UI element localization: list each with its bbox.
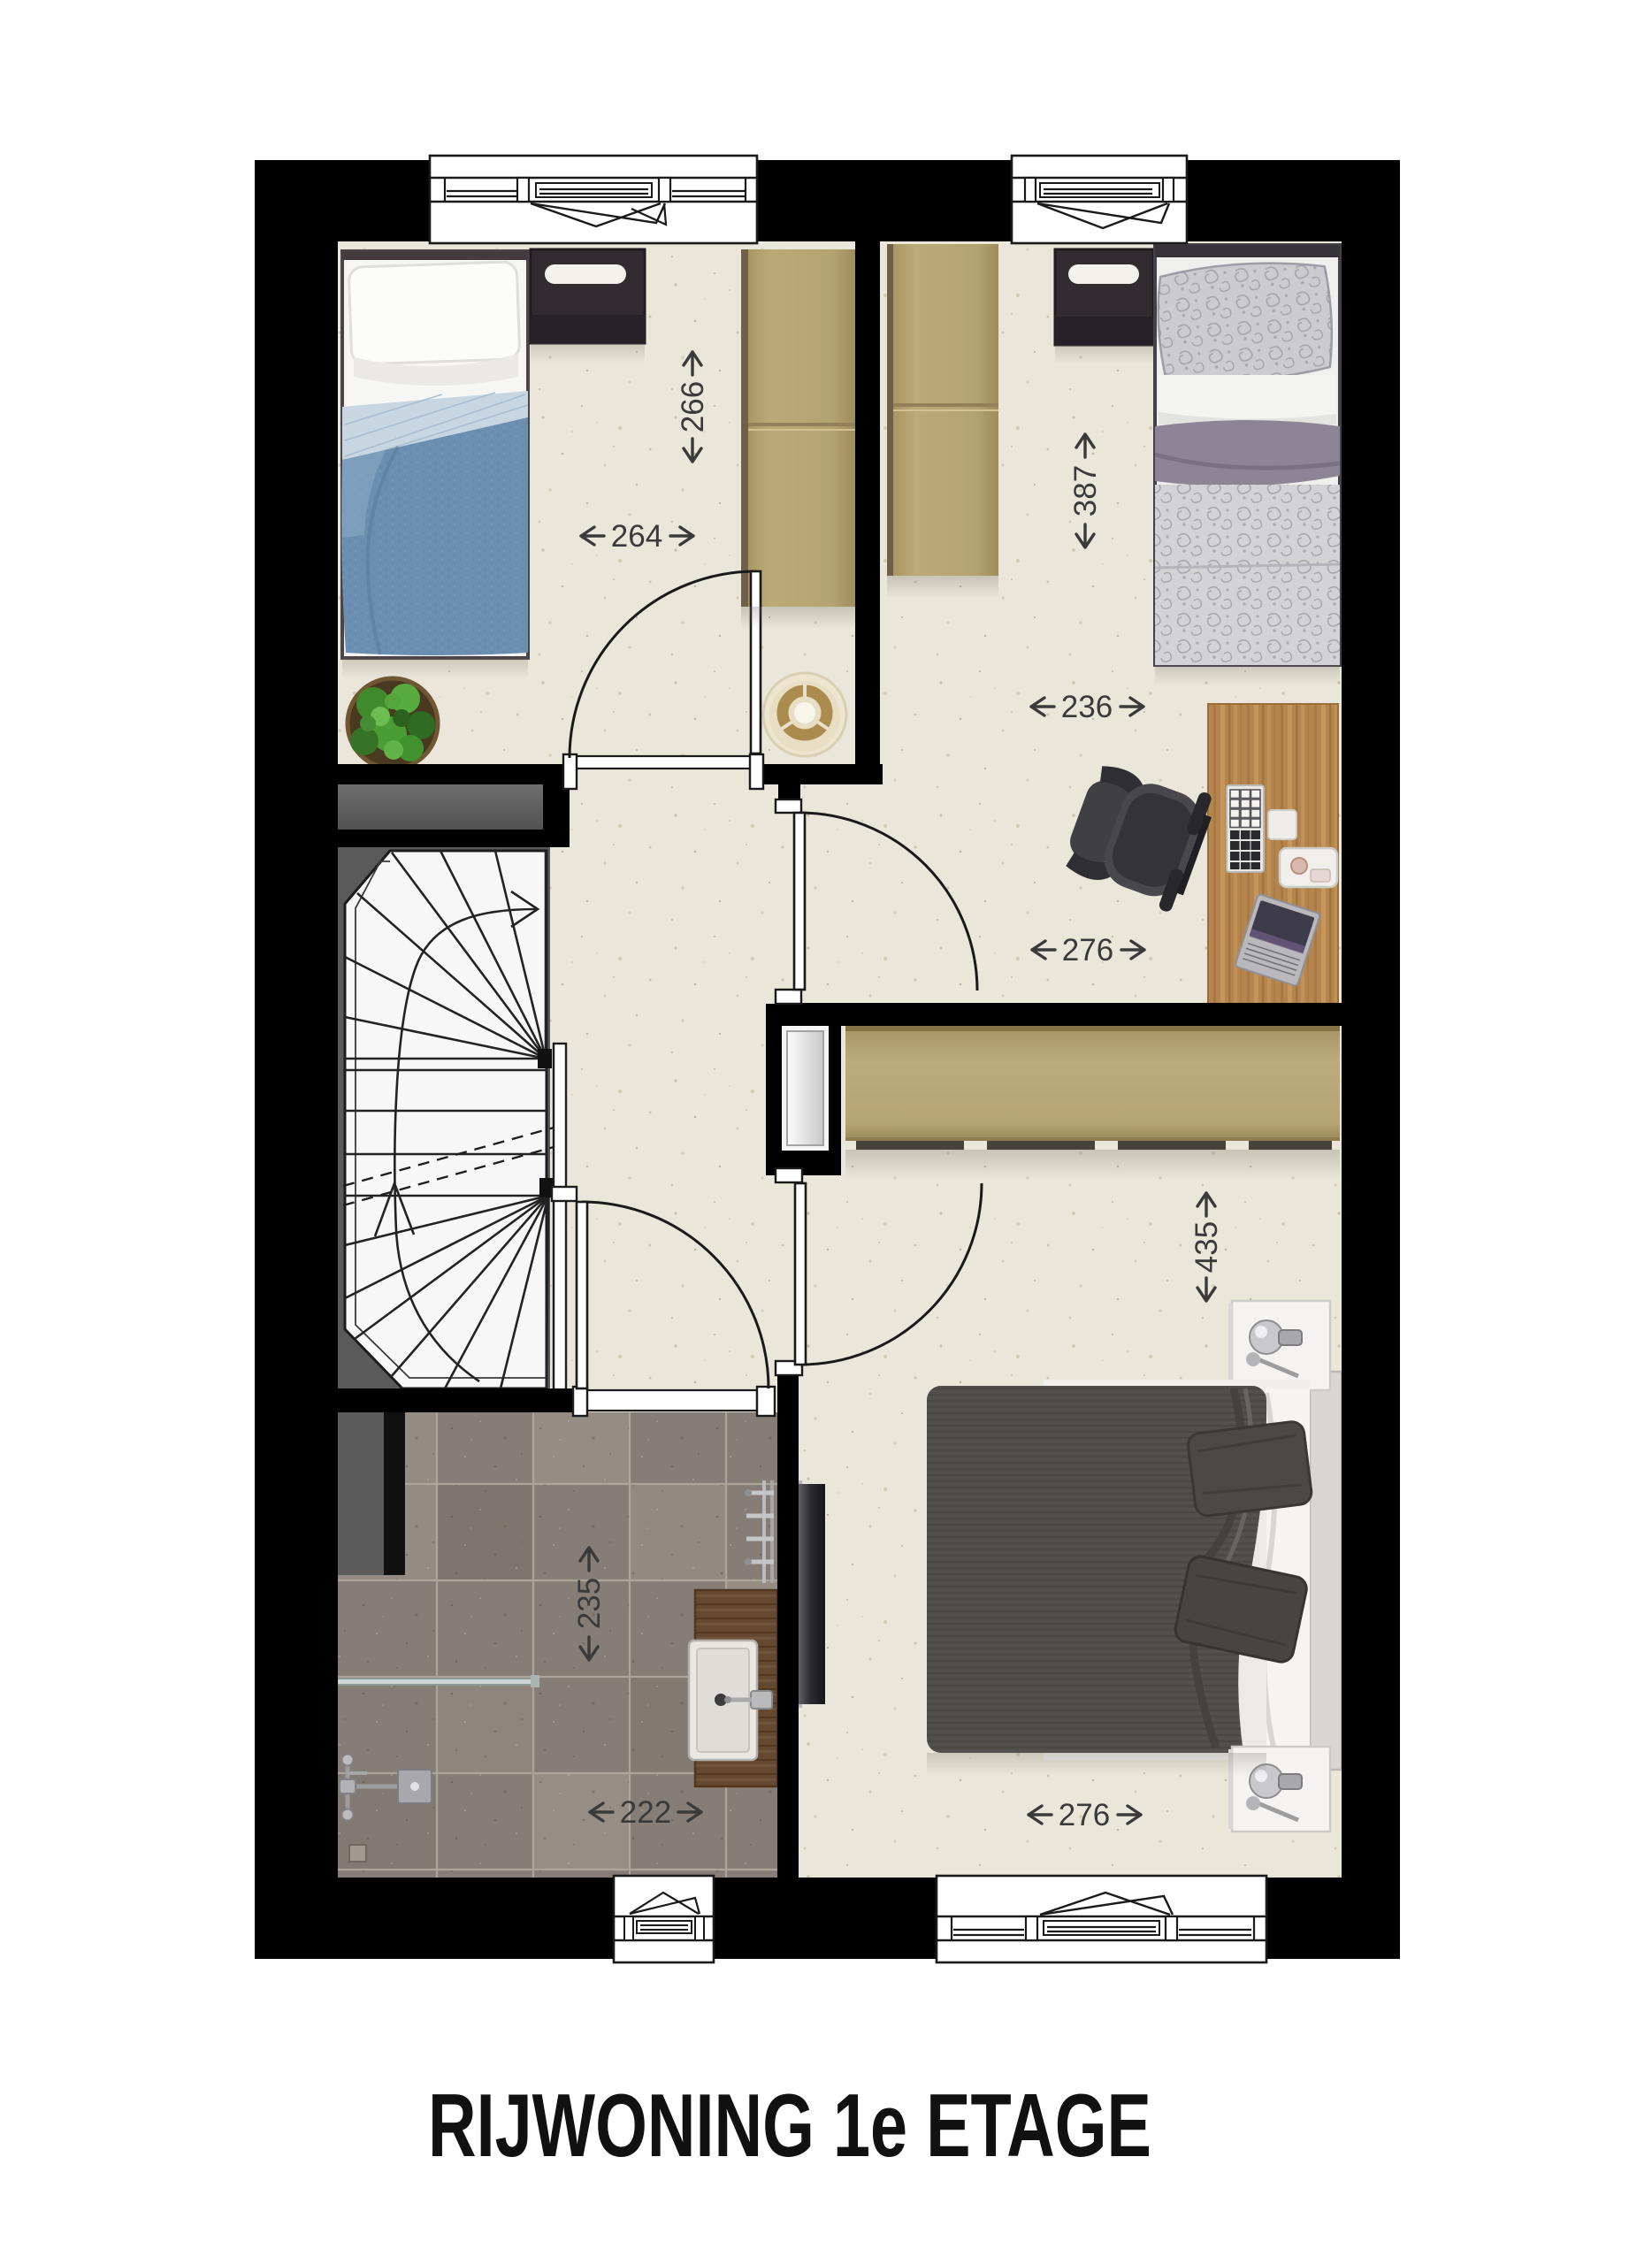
svg-text:266: 266 xyxy=(676,381,710,432)
svg-text:387: 387 xyxy=(1068,465,1103,516)
svg-text:276: 276 xyxy=(1062,933,1113,968)
svg-text:264: 264 xyxy=(611,519,662,554)
svg-text:RIJWONING 1e ETAGE: RIJWONING 1e ETAGE xyxy=(428,2077,1151,2176)
svg-text:435: 435 xyxy=(1189,1221,1224,1273)
svg-text:236: 236 xyxy=(1061,690,1113,724)
svg-text:222: 222 xyxy=(620,1795,671,1830)
svg-text:276: 276 xyxy=(1059,1798,1110,1832)
svg-text:235: 235 xyxy=(572,1578,607,1629)
